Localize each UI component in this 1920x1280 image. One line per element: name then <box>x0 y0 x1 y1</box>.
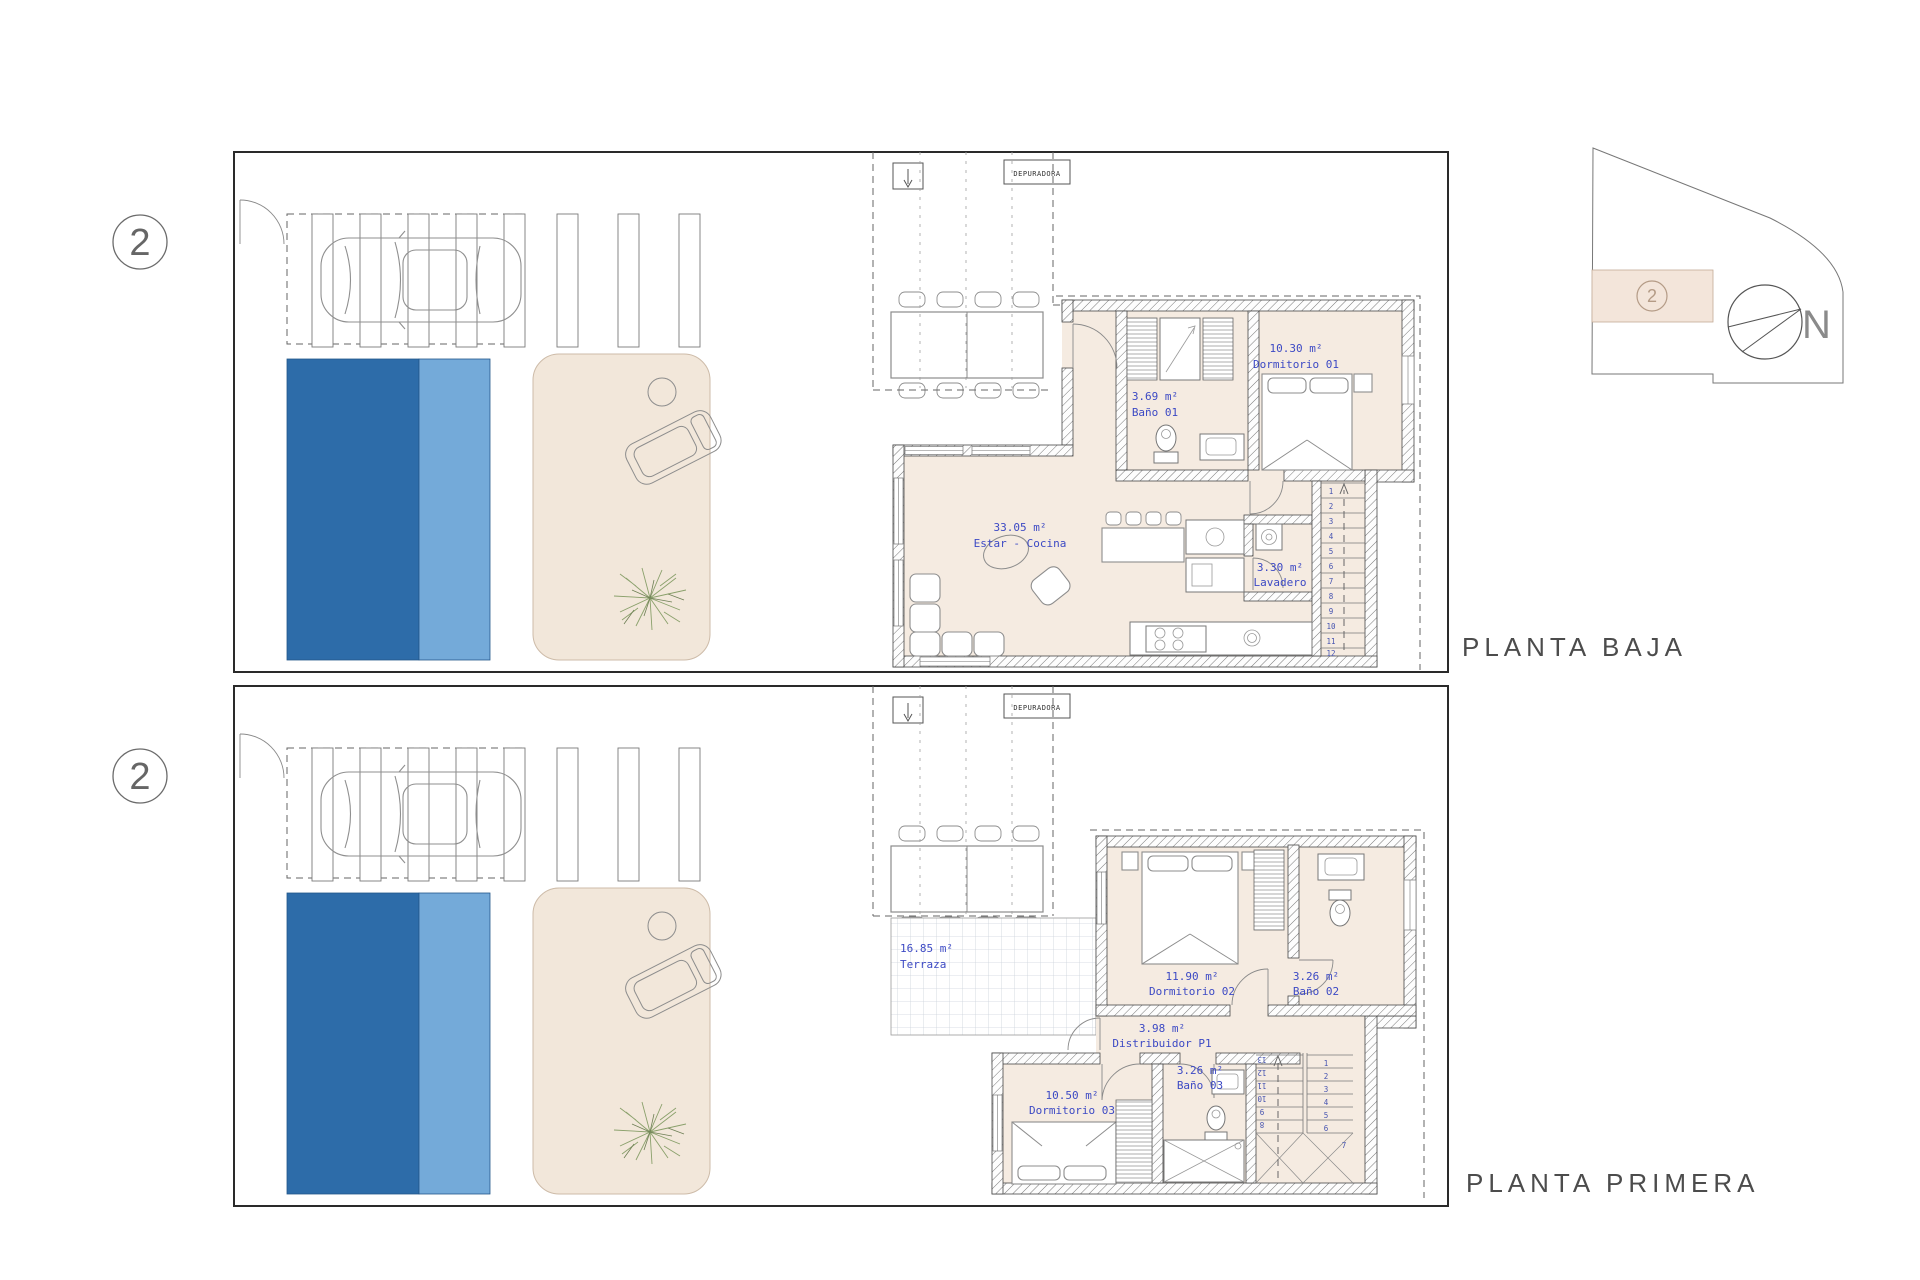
terrace <box>891 918 1096 1035</box>
stair-number: 5 <box>1324 1111 1329 1120</box>
stair-number: 5 <box>1329 547 1334 556</box>
svg-text:10.30 m²: 10.30 m² <box>1270 342 1323 355</box>
stair-number: 8 <box>1259 1120 1264 1129</box>
unit-marker-ground: 2 <box>129 222 150 264</box>
stair-number: 10 <box>1326 622 1336 631</box>
svg-text:33.05 m²: 33.05 m² <box>994 521 1047 534</box>
wardrobe <box>1116 1100 1152 1183</box>
toilet <box>1156 425 1176 451</box>
nightstand <box>1354 374 1372 392</box>
svg-text:3.26 m²: 3.26 m² <box>1177 1064 1223 1077</box>
svg-text:Distribuidor P1: Distribuidor P1 <box>1112 1037 1211 1050</box>
svg-text:Dormitorio 03: Dormitorio 03 <box>1029 1104 1115 1117</box>
stair-number: 6 <box>1329 562 1334 571</box>
cooktop <box>1146 626 1206 652</box>
svg-text:3.30 m²: 3.30 m² <box>1257 561 1303 574</box>
north-label: N <box>1802 303 1831 347</box>
svg-text:Baño 01: Baño 01 <box>1132 406 1178 419</box>
plan-ground-floor: 2 DEPURADORA <box>113 152 1687 672</box>
svg-text:11.90 m²: 11.90 m² <box>1166 970 1219 983</box>
washing-machine <box>1256 524 1282 550</box>
stair-number: 7 <box>1329 577 1334 586</box>
svg-text:Dormitorio 01: Dormitorio 01 <box>1253 358 1339 371</box>
stair-number: 2 <box>1324 1072 1329 1081</box>
toilet <box>1330 900 1350 926</box>
stair-number: 10 <box>1257 1094 1267 1103</box>
stair-number: 4 <box>1329 532 1334 541</box>
toilet-tank <box>1154 452 1178 463</box>
svg-text:Dormitorio 02: Dormitorio 02 <box>1149 985 1235 998</box>
floor-plan-drawing: 2 DEPURADORA <box>0 0 1920 1280</box>
depuradora-label-ground: DEPURADORA <box>1013 170 1060 178</box>
stair-number: 6 <box>1324 1124 1329 1133</box>
stair-number: 11 <box>1257 1081 1266 1090</box>
laundry-fixtures <box>1256 524 1282 550</box>
title-planta-baja: PLANTA BAJA <box>1462 632 1687 662</box>
stair-number: 13 <box>1257 1055 1266 1064</box>
stair-number: 3 <box>1329 517 1334 526</box>
svg-text:10.50 m²: 10.50 m² <box>1046 1089 1099 1102</box>
svg-text:3.26 m²: 3.26 m² <box>1293 970 1339 983</box>
oven <box>1186 520 1244 554</box>
wardrobe <box>1254 850 1284 930</box>
stair-number: 7 <box>1342 1141 1347 1150</box>
toilet-tank <box>1329 890 1351 900</box>
nightstand <box>1122 852 1138 870</box>
site-outline <box>1592 148 1843 383</box>
key-unit-marker: 2 <box>1647 286 1657 306</box>
stair-number: 8 <box>1329 592 1334 601</box>
unit-marker-first: 2 <box>129 756 150 798</box>
svg-text:Estar - Cocina: Estar - Cocina <box>974 537 1067 550</box>
shower <box>1160 318 1200 380</box>
svg-text:16.85 m²: 16.85 m² <box>900 942 953 955</box>
drawing-sheet: 2 DEPURADORA <box>0 0 1920 1280</box>
stair-number: 1 <box>1329 487 1334 496</box>
svg-text:Lavadero: Lavadero <box>1254 576 1307 589</box>
key-plan: 2 N <box>1592 148 1843 383</box>
kitchen-island <box>1102 528 1184 562</box>
stair-number: 4 <box>1324 1098 1329 1107</box>
stair-number: 12 <box>1326 649 1335 658</box>
stair-number: 9 <box>1260 1107 1265 1116</box>
plan-first-floor: 2 DEPURADORA <box>113 686 1759 1206</box>
stair-number: 1 <box>1324 1059 1329 1068</box>
svg-text:3.69 m²: 3.69 m² <box>1132 390 1178 403</box>
stair-number: 3 <box>1324 1085 1329 1094</box>
fridge <box>1186 558 1244 592</box>
stair-number: 2 <box>1329 502 1334 511</box>
svg-text:Terraza: Terraza <box>900 958 946 971</box>
title-planta-primera: PLANTA PRIMERA <box>1466 1168 1759 1198</box>
svg-text:Baño 02: Baño 02 <box>1293 985 1339 998</box>
svg-text:3.98 m²: 3.98 m² <box>1139 1022 1185 1035</box>
stair-number: 9 <box>1329 607 1334 616</box>
depuradora-label-first: DEPURADORA <box>1013 704 1060 712</box>
stair-number: 12 <box>1257 1068 1266 1077</box>
stair-number: 11 <box>1326 637 1335 646</box>
svg-text:Baño 03: Baño 03 <box>1177 1079 1223 1092</box>
